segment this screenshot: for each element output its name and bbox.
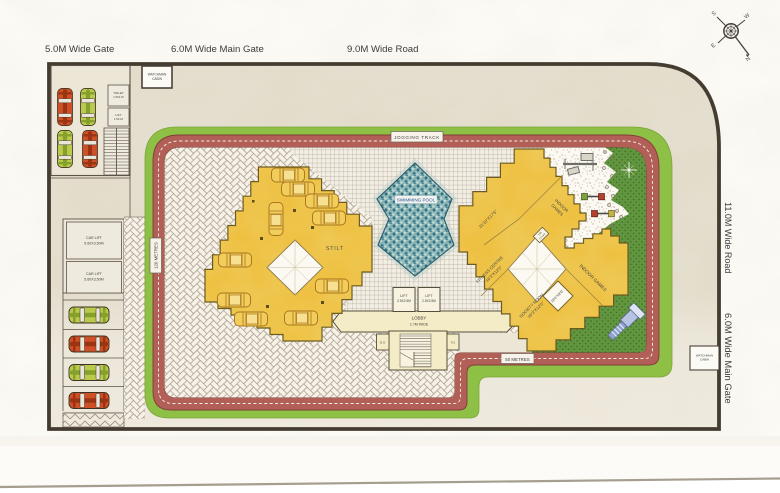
svg-text:STILT: STILT <box>326 246 344 252</box>
svg-text:5.60X3.50M: 5.60X3.50M <box>84 242 103 246</box>
svg-text:E.G: E.G <box>380 341 386 345</box>
svg-text:6.0M Wide Main Gate: 6.0M Wide Main Gate <box>723 313 734 404</box>
svg-text:6.0M Wide Main Gate: 6.0M Wide Main Gate <box>171 44 264 55</box>
svg-text:TOILET: TOILET <box>113 91 124 95</box>
svg-text:2.5X2.5M: 2.5X2.5M <box>397 299 411 303</box>
svg-text:CABIN: CABIN <box>700 358 709 362</box>
svg-text:LIFT: LIFT <box>425 294 433 298</box>
svg-text:1.7M WIDE: 1.7M WIDE <box>410 323 429 327</box>
svg-text:CAR LIFT: CAR LIFT <box>86 236 103 240</box>
svg-text:CAR LIFT: CAR LIFT <box>86 272 103 276</box>
svg-text:LIFT: LIFT <box>115 113 121 117</box>
svg-text:SWIMMING POOL: SWIMMING POOL <box>397 198 436 203</box>
svg-text:50 METRES: 50 METRES <box>505 357 529 362</box>
svg-text:WATCHMAN: WATCHMAN <box>148 73 167 77</box>
svg-text:1.5X1.8: 1.5X1.8 <box>114 117 123 121</box>
svg-text:LIFT: LIFT <box>400 294 408 298</box>
svg-text:1.5X2.15: 1.5X2.15 <box>113 95 124 99</box>
svg-text:11.0M Wide Road: 11.0M Wide Road <box>723 202 733 273</box>
svg-text:120 METRES: 120 METRES <box>154 242 159 269</box>
svg-text:5.60X3.50M: 5.60X3.50M <box>84 278 103 282</box>
svg-text:9.0M Wide Road: 9.0M Wide Road <box>347 44 418 55</box>
svg-text:LOBBY: LOBBY <box>412 316 427 321</box>
svg-text:2.5X2.5M: 2.5X2.5M <box>422 299 436 303</box>
svg-text:F.2: F.2 <box>451 341 455 345</box>
svg-text:5.0M Wide Gate: 5.0M Wide Gate <box>45 44 114 55</box>
svg-text:JOGGING TRACK: JOGGING TRACK <box>394 135 440 140</box>
svg-text:CABIN: CABIN <box>152 77 162 81</box>
